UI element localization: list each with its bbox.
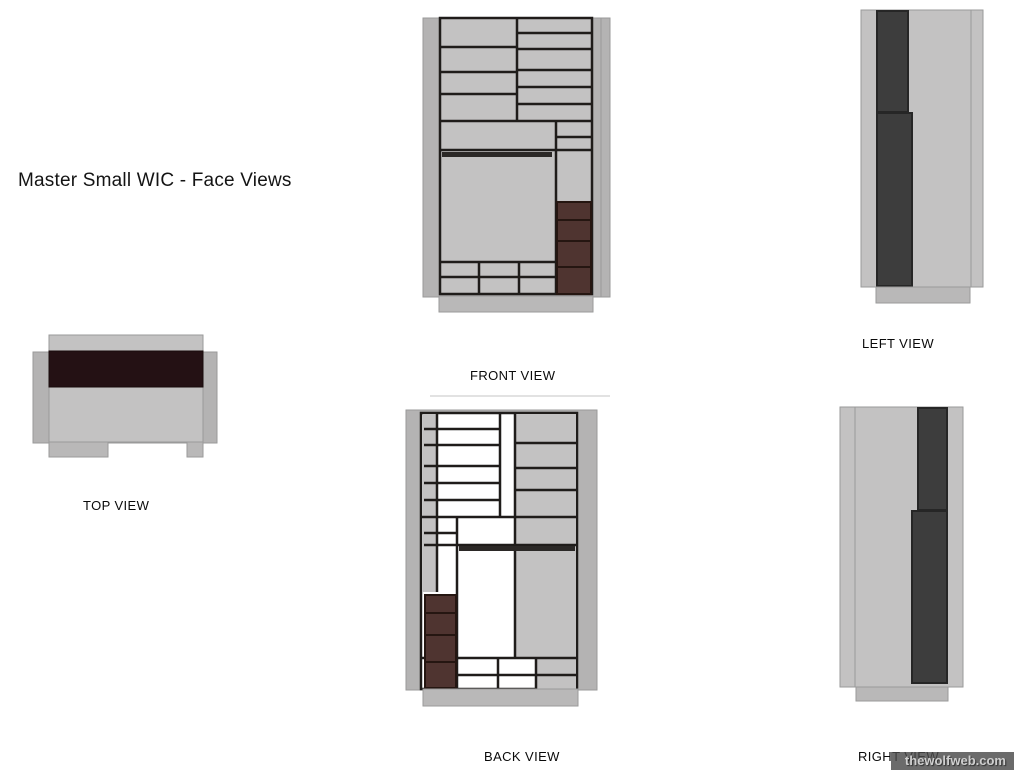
dark-column — [912, 511, 947, 683]
toe-base — [856, 687, 948, 701]
dark-band — [49, 351, 203, 387]
back-view-label: BACK VIEW — [484, 749, 560, 764]
back-view-drawing — [406, 396, 610, 706]
face-views-sheet: Master Small WIC - Face Views FRONT VIEW… — [0, 0, 1014, 770]
drawing-canvas — [0, 0, 1014, 770]
back-panel-section — [536, 658, 576, 689]
foot — [49, 442, 108, 457]
dark-column — [877, 11, 908, 112]
drawer — [557, 220, 591, 241]
dark-column — [918, 408, 947, 510]
foot — [187, 442, 203, 457]
closet-rod — [442, 152, 552, 157]
drawer — [425, 613, 456, 635]
drawer — [425, 635, 456, 662]
closet-rod — [459, 546, 575, 551]
right-view-drawing — [840, 407, 963, 701]
front-view-label: FRONT VIEW — [470, 368, 555, 383]
drawer — [557, 241, 591, 267]
top-view-drawing — [33, 335, 217, 457]
drawer — [557, 202, 591, 220]
drawer — [425, 595, 456, 613]
page-title: Master Small WIC - Face Views — [18, 170, 292, 192]
toe-base — [876, 287, 970, 303]
dark-column — [877, 113, 912, 286]
front-view-drawing — [423, 18, 610, 312]
left-view-drawing — [861, 10, 983, 303]
drawer — [425, 662, 456, 688]
watermark: thewolfweb.com — [891, 752, 1014, 770]
toe-base — [439, 296, 593, 312]
drawer — [557, 267, 591, 294]
toe-base — [423, 689, 578, 706]
left-view-label: LEFT VIEW — [862, 336, 934, 351]
back-panel-section — [515, 414, 576, 658]
top-view-label: TOP VIEW — [83, 498, 149, 513]
